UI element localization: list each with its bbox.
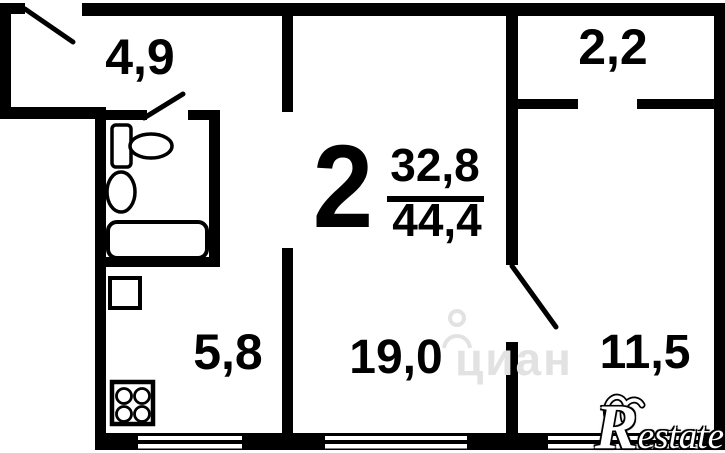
wall-left-lower [95,107,106,450]
restate-logo: Restate [592,388,725,453]
total-area-label: 44,4 [387,197,487,243]
bathtub-icon [108,222,207,258]
bedroom-area-label: 11,5 [585,329,705,377]
kitchen-window [138,444,242,449]
stove-burner-icon [117,407,132,422]
fixtures [107,125,207,424]
living-area-label: 32,8 [385,142,485,188]
wall-livingroom-lower [282,248,293,438]
restate-logo-rest: estate [638,416,724,453]
wall-bathroom-top-left [95,110,147,120]
cian-watermark: циан [455,336,573,382]
wall-hallway-bottom [0,107,106,119]
rooms-count-label: 2 [306,128,380,246]
stove-burner-icon [135,407,150,422]
floor-plan: циан 4,9 2,2 5,8 19,0 11,5 2 32,8 44,4 R… [0,0,725,453]
wall-bedroom-divider-upper [506,14,518,265]
bedroom-door-swing [512,266,556,327]
wall-left-upper [0,3,11,119]
toilet-icon [130,134,172,158]
wall-livingroom-upper [282,14,293,112]
entrance-door-swing [25,9,73,42]
stove-burner-icon [117,389,132,404]
vent-shaft [110,278,140,308]
wall-bathroom-right [209,110,220,267]
bathroom-door-swing [144,94,183,118]
kitchen-window [138,436,242,440]
balcony-area-label: 2,2 [563,22,663,72]
sink-icon [107,172,135,212]
livingroom-window [325,444,467,449]
livingroom-area-label: 19,0 [336,334,456,382]
hallway-area-label: 4,9 [90,32,190,82]
restate-logo-initial: R [595,391,638,453]
wall-right [714,3,725,450]
wall-balcony-sill-right [637,99,725,109]
restate-logo-text: Restate [595,402,724,453]
stove-burner-icon [135,389,150,404]
wall-top [82,3,725,16]
wall-balcony-sill-left [506,99,578,109]
livingroom-window [325,436,467,440]
toilet-icon [112,125,131,167]
kitchen-area-label: 5,8 [178,327,278,377]
